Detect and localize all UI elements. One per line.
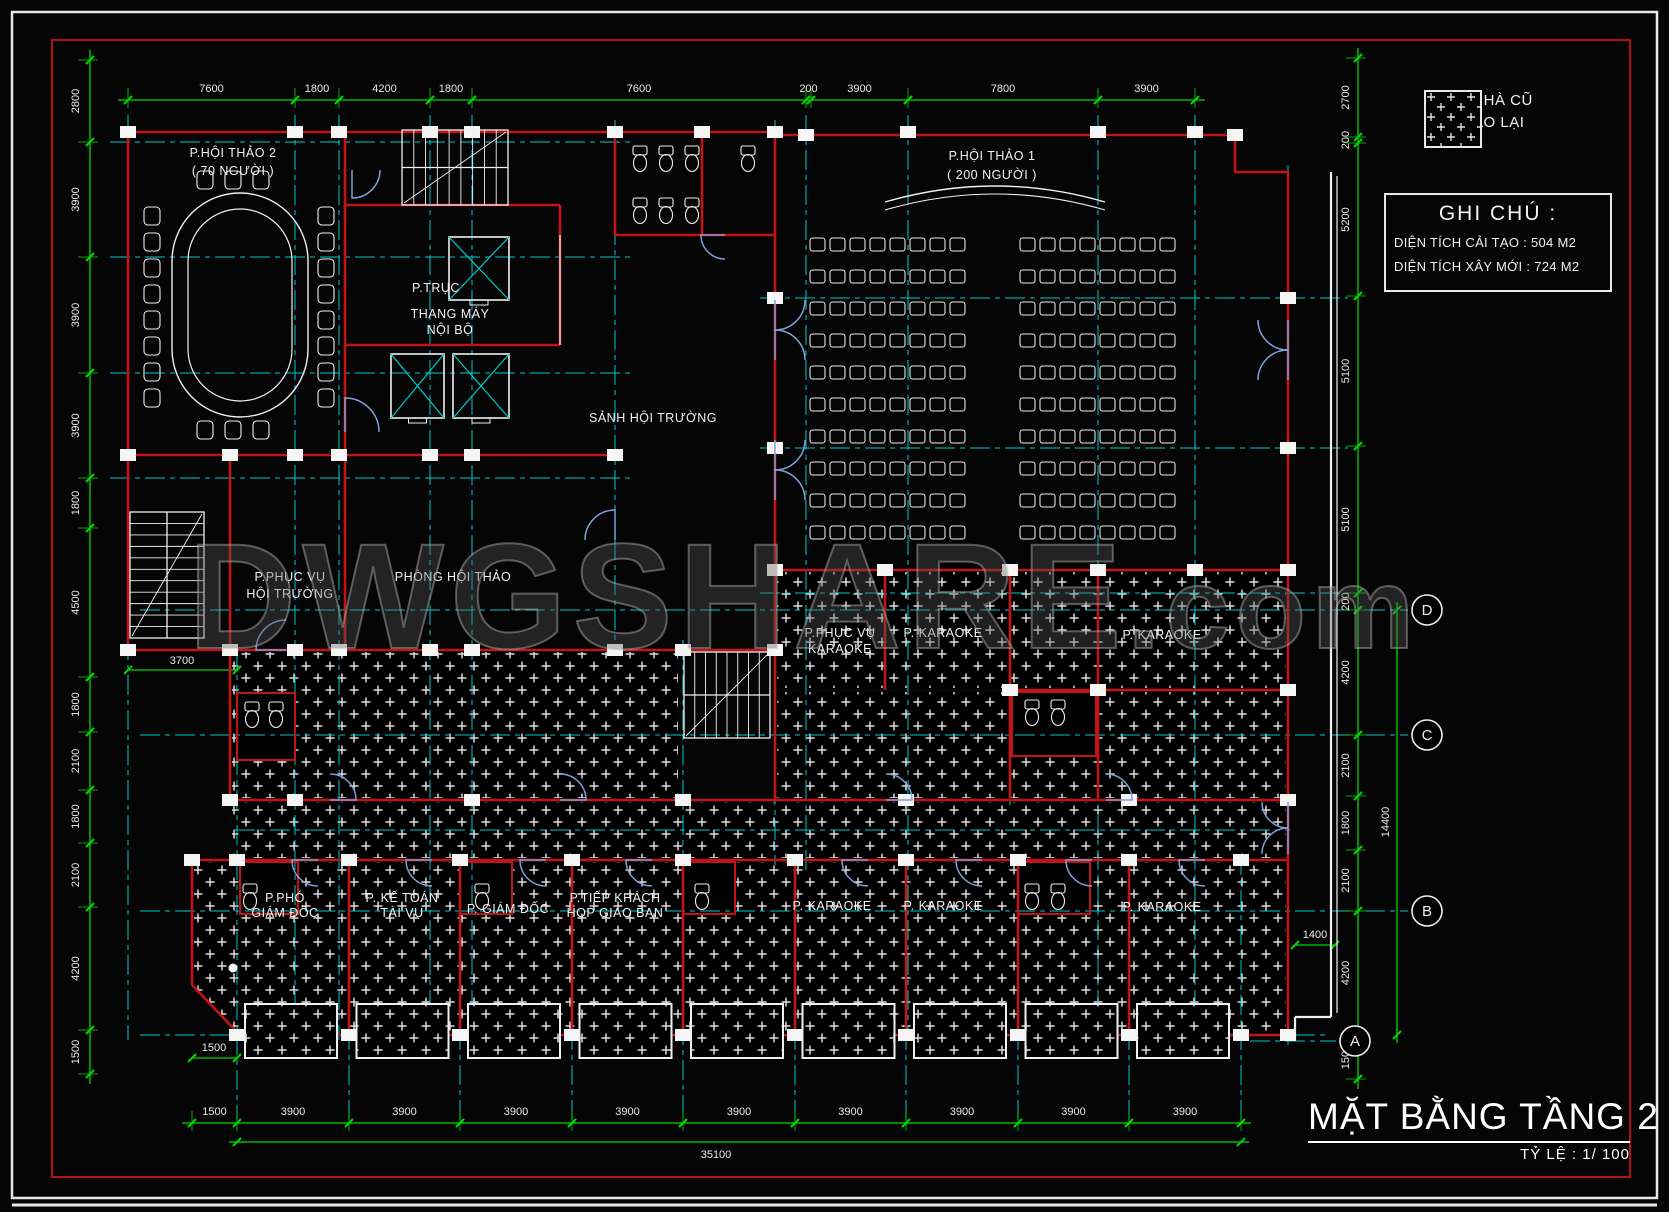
- column-marker: [287, 449, 303, 461]
- column-marker: [1187, 126, 1203, 138]
- door-swing: [775, 300, 805, 330]
- column-marker: [331, 449, 347, 461]
- dim-label: 1500: [202, 1042, 226, 1054]
- dim-label: 3900: [838, 1106, 862, 1118]
- door-swing: [345, 398, 379, 432]
- notes-box: GHI CHÚ : DIỆN TÍCH CẢI TẠO : 504 M2 DIỆ…: [1384, 193, 1612, 292]
- column-marker: [222, 449, 238, 461]
- dim-label: 200: [1340, 131, 1352, 149]
- column-marker: [694, 126, 710, 138]
- dim-label: 3900: [70, 413, 82, 437]
- column-marker: [120, 449, 136, 461]
- terrace-module: [691, 1004, 783, 1058]
- door-swing: [1258, 350, 1288, 380]
- dim-label: 3900: [281, 1106, 305, 1118]
- dim-label: 5100: [1340, 507, 1352, 531]
- dim-label: 2100: [70, 863, 82, 887]
- floor-plan-svg: 7600180042001800760020039007800390028003…: [0, 0, 1669, 1212]
- room-label-giamdoc: P. GIÁM ĐỐC: [467, 901, 549, 916]
- column-marker: [1227, 129, 1243, 141]
- column-marker: [675, 854, 691, 866]
- column-marker: [1280, 684, 1296, 696]
- room-label-hoithao2: ( 70 NGƯỜI ): [192, 163, 274, 178]
- column-marker: [787, 1029, 803, 1041]
- terrace-module: [1026, 1004, 1118, 1058]
- dim-label: 1400: [1303, 929, 1327, 941]
- door-swing: [775, 470, 805, 500]
- column-marker: [1090, 684, 1106, 696]
- dim-label: 1800: [1340, 811, 1352, 835]
- dim-label: 1800: [70, 804, 82, 828]
- dim-label: 35100: [701, 1149, 732, 1161]
- column-marker: [452, 1029, 468, 1041]
- dim-label: 3900: [615, 1106, 639, 1118]
- column-marker: [1010, 1029, 1026, 1041]
- column-marker: [1280, 292, 1296, 304]
- dim-label: 2100: [70, 749, 82, 773]
- column-marker: [798, 129, 814, 141]
- dim-label: 7800: [991, 83, 1015, 95]
- column-marker: [675, 1029, 691, 1041]
- dim-label: 4200: [1340, 961, 1352, 985]
- dim-label: 3900: [1173, 1106, 1197, 1118]
- dim-label: 1800: [70, 692, 82, 716]
- door-swing: [775, 330, 805, 360]
- drawing-title-block: MẶT BẰNG TẦNG 2 TỶ LỆ : 1/ 100: [1308, 1096, 1630, 1163]
- room-label-ketoan: P. KẾ TOÁN: [365, 890, 438, 905]
- column-marker: [898, 1029, 914, 1041]
- dim-label: 14400: [1380, 807, 1392, 838]
- dim-label: 4200: [372, 83, 396, 95]
- column-marker: [464, 126, 480, 138]
- dim-label: 3900: [950, 1106, 974, 1118]
- dim-label: 1800: [439, 83, 463, 95]
- column-marker: [287, 794, 303, 806]
- column-marker: [464, 794, 480, 806]
- dim-label: 200: [799, 83, 817, 95]
- axis-bubble-C: C: [1422, 727, 1433, 744]
- room-label-pho_giamdoc: GIÁM ĐỐC: [251, 905, 318, 920]
- column-marker: [787, 854, 803, 866]
- room-label-kar_bot_3: P. KARAOKE: [1122, 900, 1201, 914]
- column-marker: [331, 126, 347, 138]
- drawing-title: MẶT BẰNG TẦNG 2: [1308, 1096, 1630, 1143]
- terrace-module: [357, 1004, 449, 1058]
- dim-label: 2800: [70, 89, 82, 113]
- axis-bubble-B: B: [1422, 903, 1432, 920]
- room-label-thangmay: THANG MÁY: [411, 306, 490, 321]
- dim-label: 2100: [1340, 753, 1352, 777]
- column-marker: [287, 126, 303, 138]
- dim-label: 2100: [1340, 868, 1352, 892]
- column-marker: [607, 126, 623, 138]
- column-marker: [1010, 854, 1026, 866]
- room-label-kar_bot_2: P. KARAOKE: [903, 899, 982, 913]
- dim-label: 1500: [202, 1106, 226, 1118]
- column-marker: [229, 854, 245, 866]
- dim-label: 5100: [1340, 359, 1352, 383]
- door-swing: [701, 235, 725, 259]
- door-swing: [352, 170, 380, 198]
- dim-label: 1500: [70, 1040, 82, 1064]
- column-marker: [1233, 854, 1249, 866]
- dim-label: 4500: [70, 590, 82, 614]
- legend-hatch-swatch: [1424, 90, 1482, 148]
- room-label-ketoan: TÀI VỤ: [380, 905, 423, 920]
- column-marker: [229, 1029, 245, 1041]
- dim-label: 3900: [504, 1106, 528, 1118]
- column-marker: [767, 126, 783, 138]
- dim-label: 7600: [627, 83, 651, 95]
- column-marker: [341, 854, 357, 866]
- notes-new-area: DIỆN TÍCH XÂY MỚI : 724 M2: [1394, 259, 1610, 274]
- column-marker: [422, 449, 438, 461]
- axis-bubble-D: D: [1422, 602, 1433, 619]
- dim-label: 3900: [392, 1106, 416, 1118]
- column-marker: [452, 854, 468, 866]
- column-marker: [184, 854, 200, 866]
- column-marker: [1280, 1029, 1296, 1041]
- room-label-hoithao2: P.HỘI THẢO 2: [190, 145, 277, 160]
- column-marker: [341, 1029, 357, 1041]
- dim-label: 3900: [1134, 83, 1158, 95]
- notes-title: GHI CHÚ :: [1386, 202, 1610, 226]
- column-marker: [464, 449, 480, 461]
- column-marker: [675, 794, 691, 806]
- dim-label: 2700: [1340, 85, 1352, 109]
- column-marker: [1090, 126, 1106, 138]
- terrace-module: [468, 1004, 560, 1058]
- dim-label: 4200: [70, 956, 82, 980]
- column-marker: [1002, 684, 1018, 696]
- room-label-kar_bot_1: P. KARAOKE: [792, 899, 871, 913]
- column-marker: [120, 126, 136, 138]
- dim-label: 3900: [847, 83, 871, 95]
- column-marker: [900, 126, 916, 138]
- room-label-tiepkhach: HỌP GIAO BAN: [567, 906, 664, 920]
- scale-value: 1/ 100: [1582, 1146, 1630, 1163]
- column-marker: [1233, 1029, 1249, 1041]
- terrace-module: [245, 1004, 337, 1058]
- column-marker: [607, 449, 623, 461]
- drawing-scale: TỶ LỆ : 1/ 100: [1308, 1146, 1630, 1163]
- dim-label: 3900: [70, 303, 82, 327]
- dim-label: 1800: [70, 491, 82, 515]
- column-marker: [1121, 854, 1137, 866]
- door-swing: [1258, 320, 1288, 350]
- column-marker: [1280, 442, 1296, 454]
- dim-label: 7600: [199, 83, 223, 95]
- dim-label: 3900: [727, 1106, 751, 1118]
- floor-plan-page: 7600180042001800760020039007800390028003…: [0, 0, 1669, 1212]
- column-marker: [222, 794, 238, 806]
- dim-label: 5200: [1340, 207, 1352, 231]
- column-marker: [898, 854, 914, 866]
- terrace-module: [914, 1004, 1006, 1058]
- room-label-ptruc: P.TRỤC: [412, 281, 460, 295]
- column-marker: [1121, 1029, 1137, 1041]
- room-label-sanh: SẢNH HỘI TRƯỜNG: [589, 410, 717, 425]
- scale-label: TỶ LỆ :: [1520, 1146, 1577, 1163]
- room-label-hoithao1: P.HỘI THẢO 1: [949, 148, 1036, 163]
- notes-renovated-area: DIỆN TÍCH CẢI TẠO : 504 M2: [1394, 235, 1610, 250]
- column-marker: [120, 644, 136, 656]
- room-label-hoithao1: ( 200 NGƯỜI ): [947, 167, 1037, 182]
- legend-old-building: PHẦN NHÀ CŨ CẢI TẠO LẠI: [1424, 90, 1533, 134]
- terrace-module: [580, 1004, 672, 1058]
- column-marker: [422, 126, 438, 138]
- room-label-pho_giamdoc: P.PHÓ: [265, 890, 305, 905]
- room-label-thangmay: NỘI BỘ: [427, 322, 474, 337]
- watermark: DWGSHARE.com: [188, 512, 1420, 680]
- terrace-module: [1137, 1004, 1229, 1058]
- dim-label: 3900: [70, 187, 82, 211]
- axis-bubble-A: A: [1350, 1033, 1360, 1050]
- column-marker: [564, 1029, 580, 1041]
- watermark-text: DWGSHARE.com: [188, 512, 1420, 680]
- dim-label: 1800: [305, 83, 329, 95]
- column-marker: [564, 854, 580, 866]
- terrace-module: [803, 1004, 895, 1058]
- dim-label: 3900: [1061, 1106, 1085, 1118]
- room-label-tiepkhach: P.TIẾP KHÁCH: [570, 890, 661, 905]
